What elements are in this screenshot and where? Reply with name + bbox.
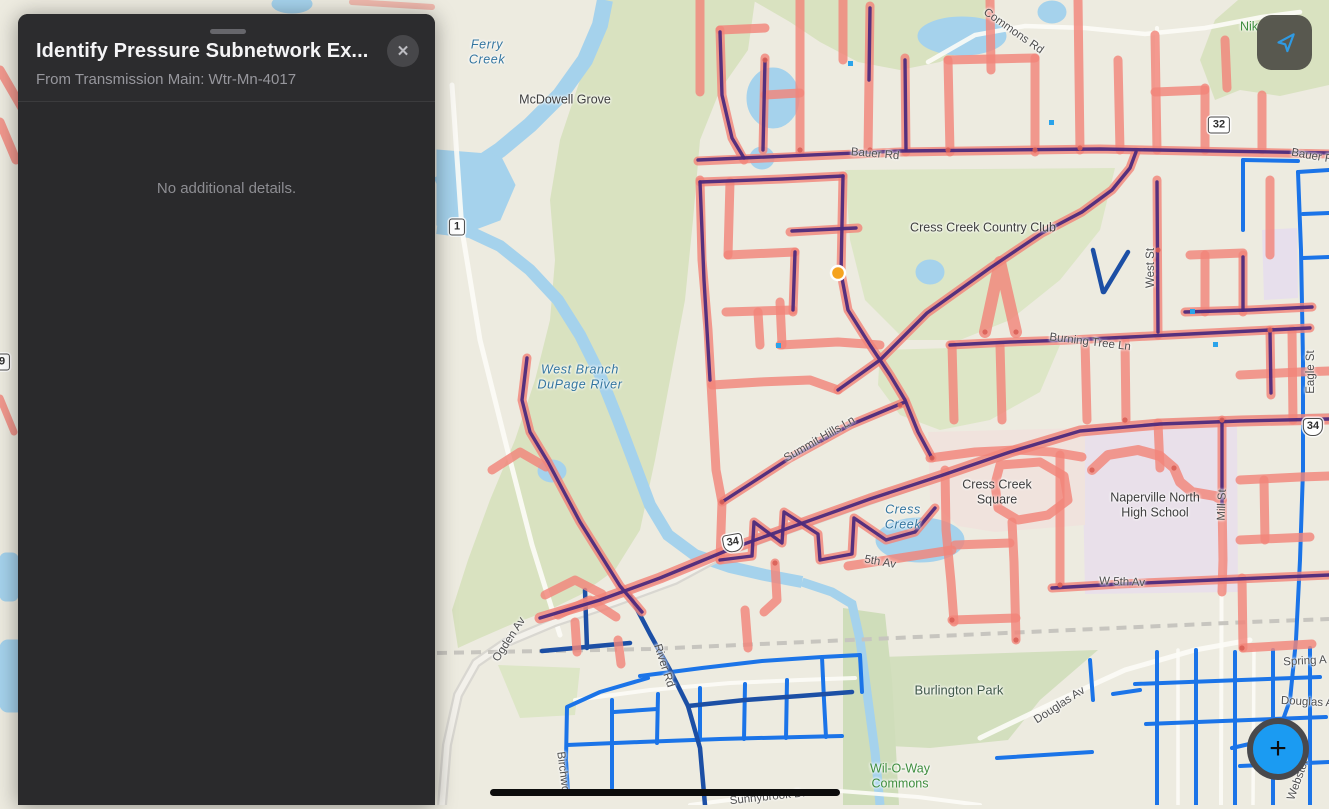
drag-handle[interactable] [210,29,246,34]
close-icon: ✕ [397,42,410,60]
selected-feature-marker[interactable] [831,266,845,280]
navigation-arrow-icon [1272,30,1298,56]
identify-result-panel: Identify Pressure Subnetwork Ex... ✕ Fro… [18,14,435,805]
locate-me-button[interactable] [1257,15,1312,70]
close-button[interactable]: ✕ [387,35,419,67]
route-shield-9: 9 [0,354,10,371]
panel-title: Identify Pressure Subnetwork Ex... [36,40,379,63]
route-shield-32: 32 [1208,117,1230,134]
panel-subtitle: From Transmission Main: Wtr-Mn-4017 [36,71,419,88]
panel-header: Identify Pressure Subnetwork Ex... ✕ Fro… [18,14,435,102]
panel-body: No additional details. [18,102,435,805]
panel-body-text: No additional details. [157,180,296,197]
route-shield-34-east: 34 [1303,418,1323,436]
route-shield-1: 1 [449,219,465,236]
plus-icon: + [1269,732,1287,766]
add-feature-button[interactable]: + [1247,718,1309,780]
home-indicator[interactable] [490,789,840,796]
